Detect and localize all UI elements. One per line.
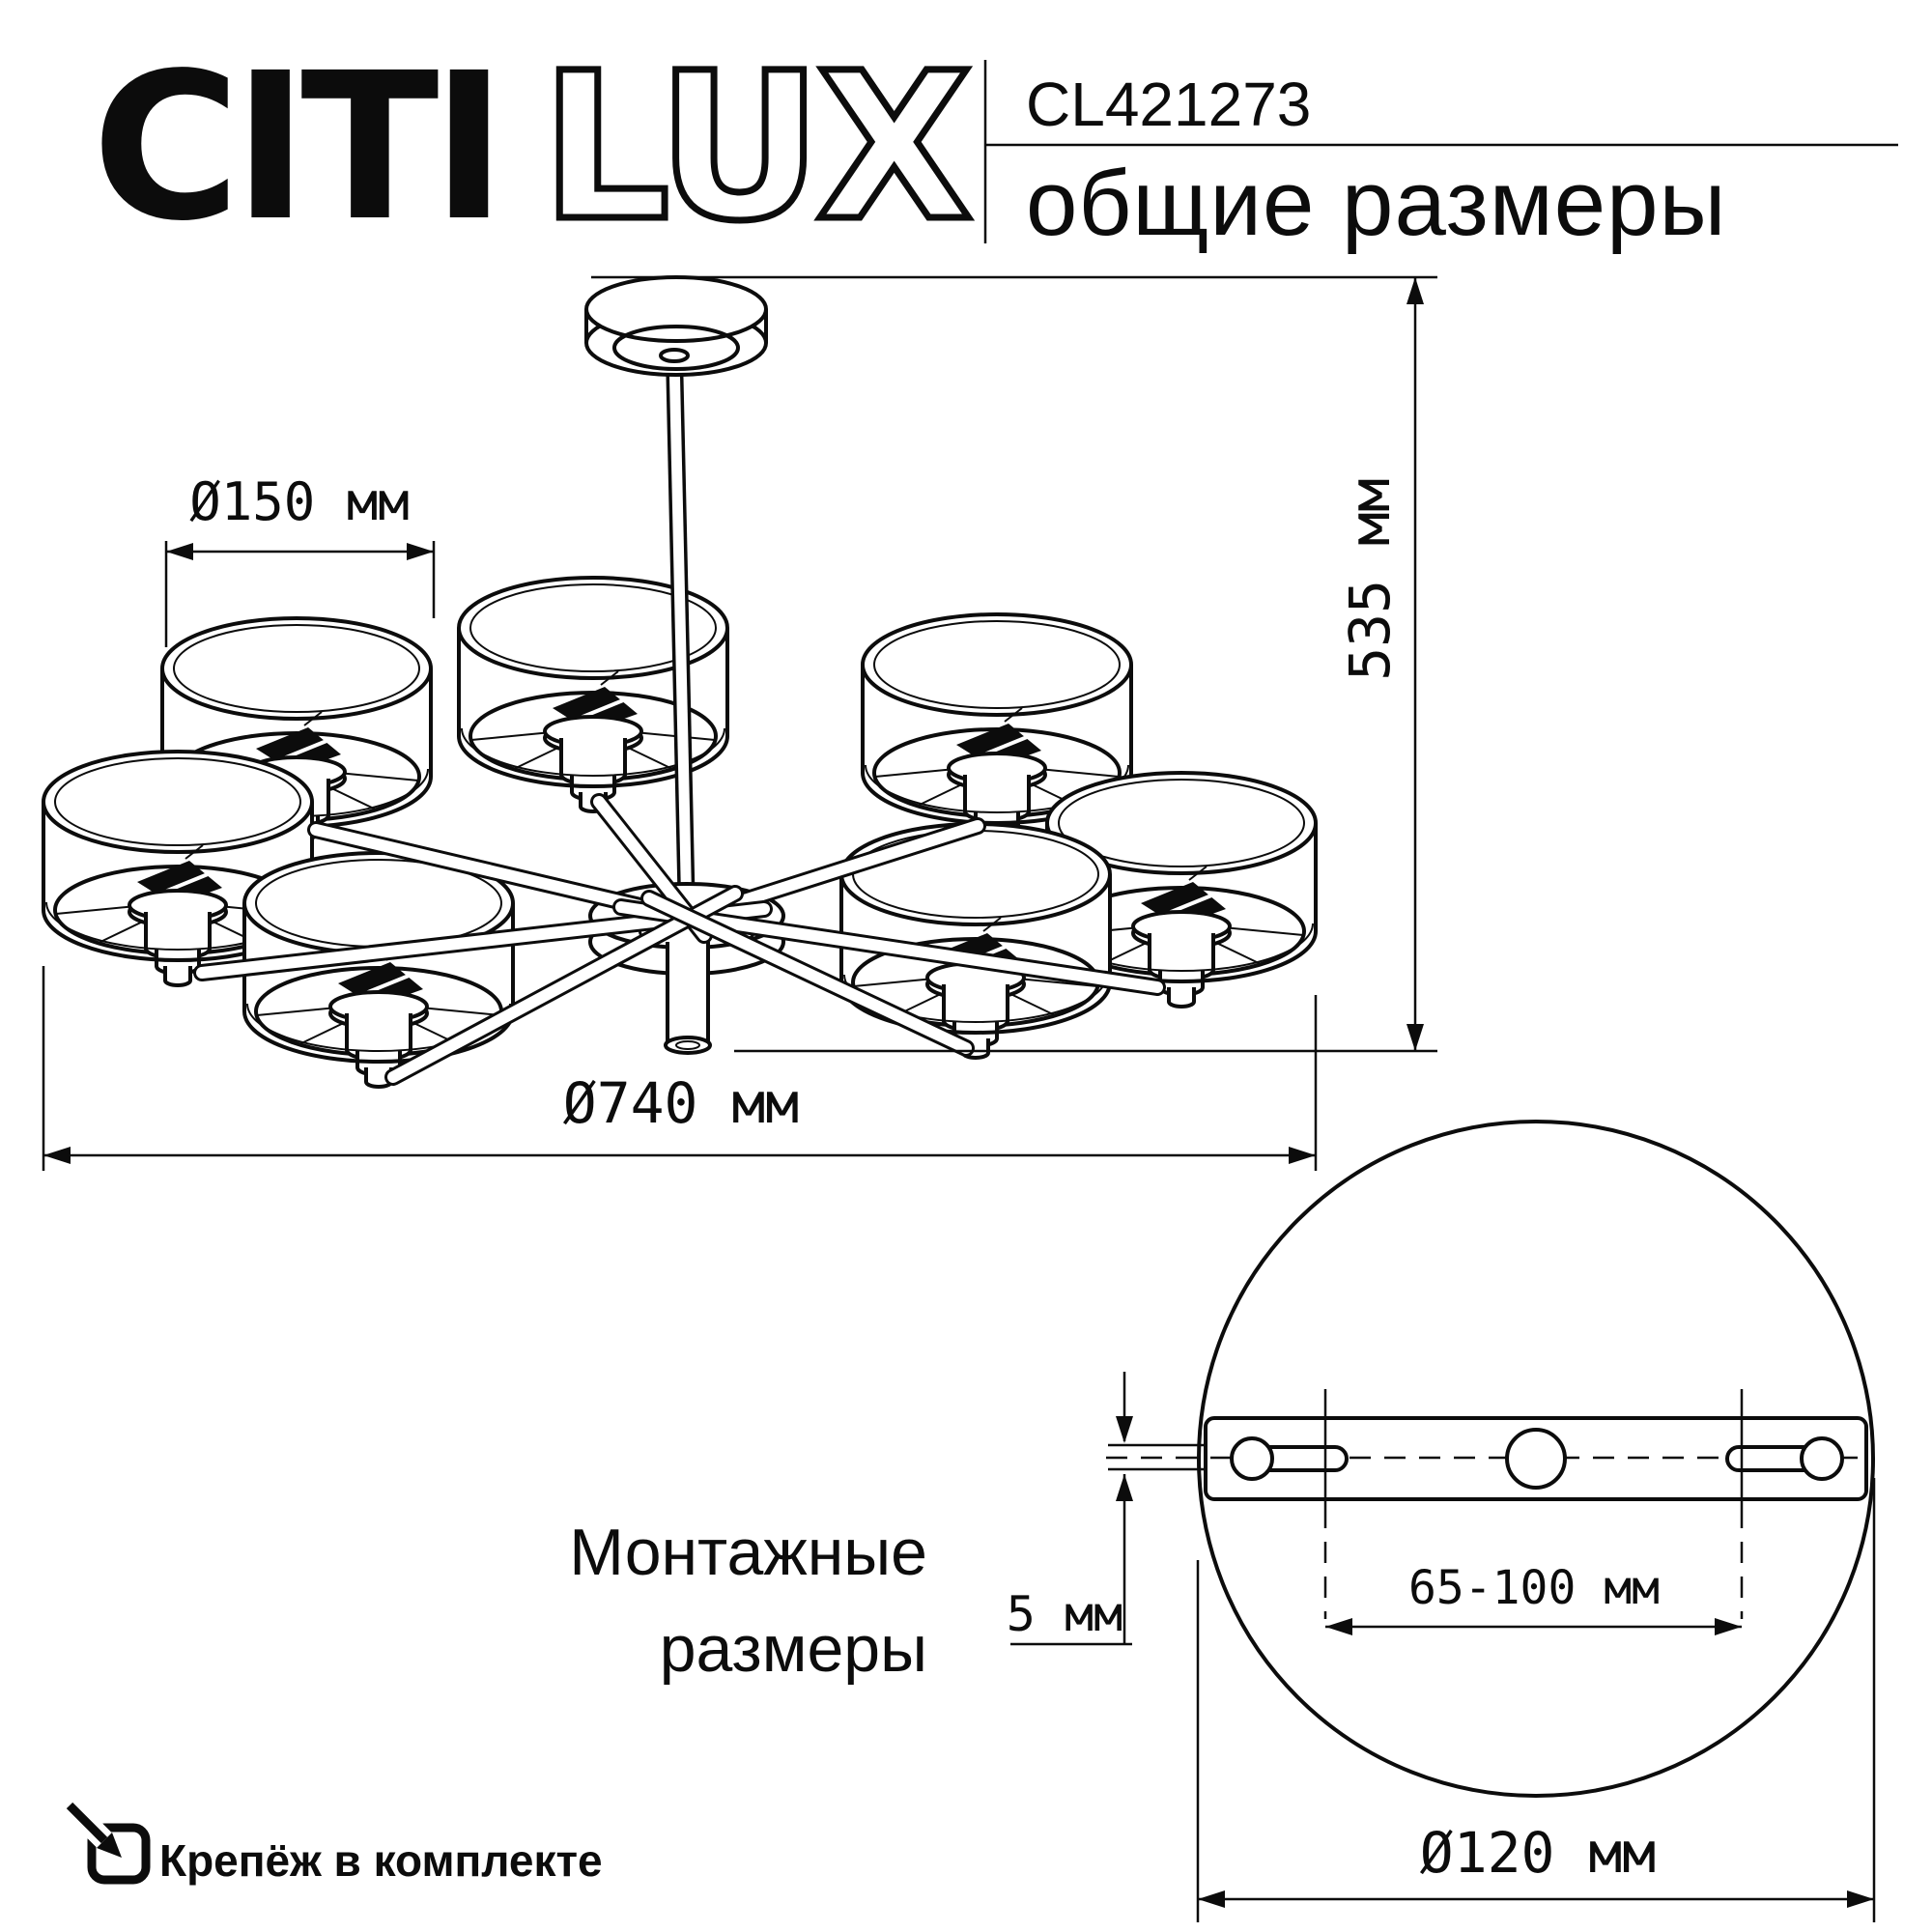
mounting-title-line2: размеры xyxy=(660,1612,927,1686)
mounting-diagram: 65-100 мм 5 мм Ø120 мм xyxy=(1007,1122,1874,1922)
logo-lux-text: LUX xyxy=(541,29,969,266)
dim-height-label: 535 мм xyxy=(1337,478,1403,681)
dim-plate-diameter-label: Ø120 мм xyxy=(1420,1820,1656,1886)
dim-shade-diameter-label: Ø150 мм xyxy=(189,471,410,532)
hardware-included: Крепёж в комплекте xyxy=(70,1805,603,1886)
model-number: CL421273 xyxy=(1026,70,1311,139)
mounting-title-line1: Монтажные xyxy=(569,1516,927,1589)
ceiling-canopy xyxy=(586,277,766,375)
datasheet-page: CITI LUX CL421273 общие размеры xyxy=(0,0,1932,1932)
chandelier-drawing xyxy=(43,277,1437,1087)
dim-plate-thickness: 5 мм xyxy=(1007,1372,1133,1644)
stem-rod xyxy=(674,355,687,918)
dim-plate-thickness-label: 5 мм xyxy=(1007,1586,1122,1642)
page-title: общие размеры xyxy=(1026,152,1727,255)
dimension-diagram: CITI LUX CL421273 общие размеры xyxy=(0,0,1932,1932)
logo: CITI LUX xyxy=(92,29,969,266)
hardware-included-label: Крепёж в комплекте xyxy=(159,1835,603,1886)
dim-screw-span-label: 65-100 мм xyxy=(1408,1561,1660,1615)
bottom-stub xyxy=(666,942,710,1053)
hardware-icon xyxy=(70,1805,146,1880)
center-hole xyxy=(1507,1430,1565,1488)
logo-citi-text: CITI xyxy=(92,29,499,266)
dim-overall-diameter-label: Ø740 мм xyxy=(563,1070,799,1136)
mounting-title: Монтажные размеры xyxy=(569,1516,927,1686)
